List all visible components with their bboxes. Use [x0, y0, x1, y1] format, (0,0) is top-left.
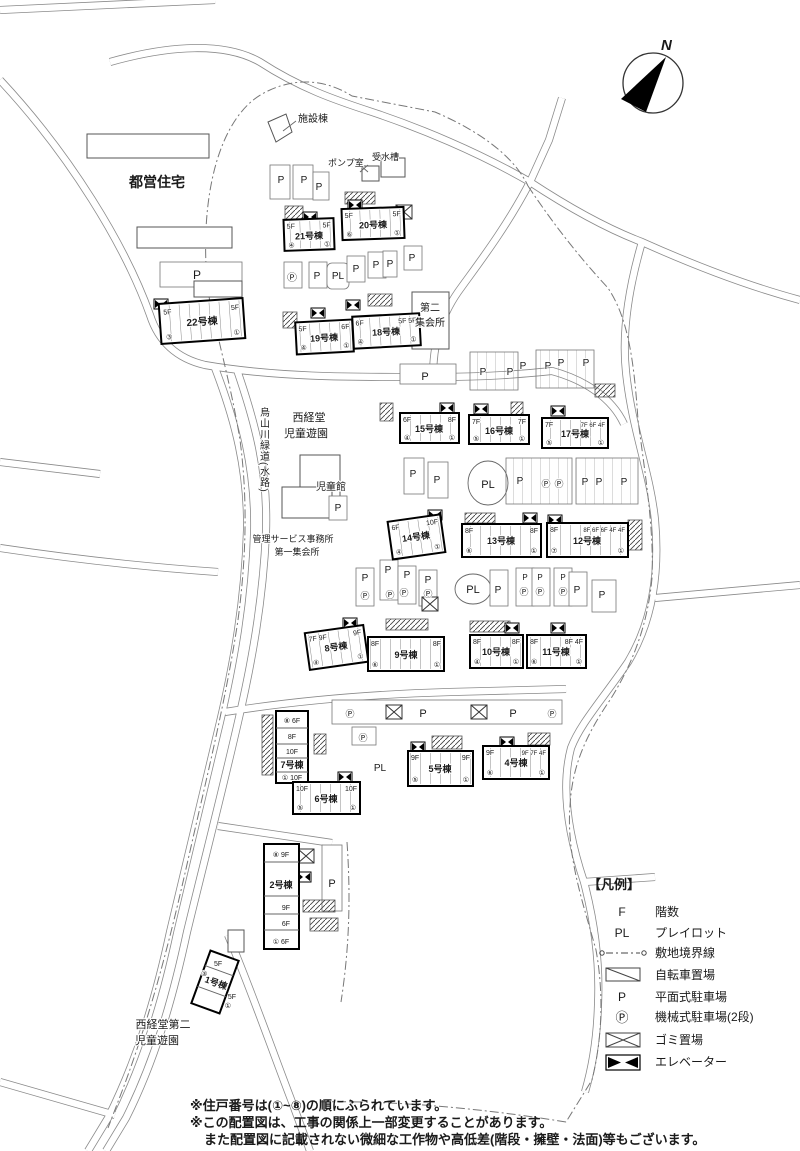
- parking-label: P: [193, 268, 201, 282]
- unit-label: ①: [463, 776, 469, 784]
- machine-parking-label: Ⓟ: [358, 733, 367, 743]
- parking-label: P: [387, 259, 394, 270]
- elevator-icon: [338, 772, 352, 782]
- unit-label: ①: [449, 434, 455, 442]
- elevator-icon: [440, 403, 454, 413]
- floor-label: 8F: [530, 528, 538, 535]
- machine-parking-label: Ⓟ: [423, 589, 432, 599]
- floor-label: 9F: [411, 755, 419, 762]
- building-13: 8F 8F 13号棟 ⑥ ①: [462, 524, 541, 557]
- legend-symbol-pl: PL: [615, 926, 630, 940]
- park1-label-line2: 児童遊園: [284, 426, 328, 440]
- legend-label-floors: 階数: [655, 904, 679, 919]
- parking-label: P: [517, 476, 524, 487]
- building-name: 6号棟: [314, 793, 338, 804]
- playlot-label: PL: [374, 763, 387, 774]
- parking-label: P: [558, 358, 565, 369]
- parking-label: P: [520, 361, 527, 372]
- building-8: 7F 9F 9F 8号棟 ④ ①: [305, 625, 369, 670]
- parking-label: P: [596, 477, 603, 488]
- unit-label: ①: [598, 439, 604, 447]
- floor-label: 8F: [465, 528, 473, 535]
- building-name: 2号棟: [269, 879, 293, 890]
- floor-label: 8F: [512, 639, 520, 646]
- machine-parking-label: Ⓟ: [554, 479, 563, 489]
- unit-label: ④: [357, 338, 364, 346]
- legend-elevator-symbol: [606, 1055, 640, 1070]
- parking-label: P: [537, 573, 542, 582]
- unit-label: ④: [312, 659, 319, 668]
- floor-label: 9F: [462, 755, 470, 762]
- floor-label: 9F 7F 4F: [522, 751, 547, 757]
- floor-label: 5F: [214, 961, 222, 968]
- floor-label: ① 6F: [273, 938, 289, 946]
- legend-boundary-symbol: [600, 951, 646, 955]
- building-4: 9F 9F 7F 4F 4号棟 ⑥ ①: [483, 746, 549, 779]
- bicycle-parking: [380, 403, 393, 421]
- legend-label-garbage: ゴミ置場: [655, 1032, 703, 1047]
- floor-label: 8F: [448, 417, 456, 424]
- parking-label: P: [385, 565, 392, 576]
- greenway-label: 烏山川緑道(水路): [258, 406, 270, 493]
- floor-label: 6F: [391, 524, 400, 532]
- parking-label: P: [419, 708, 426, 720]
- elevator-icon: [523, 513, 537, 523]
- floor-label: 8F 6F 6F 4F 4F: [583, 528, 625, 534]
- playlot-label: PL: [332, 271, 345, 282]
- bicycle-parking: [470, 621, 510, 632]
- unit-label: ④: [474, 658, 480, 666]
- parking-label: P: [373, 260, 380, 271]
- bicycle-parking: [628, 520, 642, 550]
- legend-label-bicycle: 自転車置場: [655, 968, 715, 982]
- legend-bicycle-symbol: [606, 968, 640, 981]
- small-structure: [228, 930, 244, 952]
- legend-garbage-symbol: [606, 1033, 640, 1047]
- facility-label: 施設棟: [298, 112, 328, 125]
- legend-label-elevator: エレベーター: [655, 1055, 727, 1069]
- elevator-icon: [474, 404, 488, 414]
- building-name: 18号棟: [372, 325, 402, 338]
- bicycle-parking: [314, 734, 326, 754]
- legend-symbol-p: P: [618, 990, 626, 1004]
- north-label: N: [661, 37, 673, 54]
- bicycle-parking: [386, 619, 428, 630]
- parking-strip: [332, 700, 562, 724]
- building-name: 16号棟: [485, 425, 514, 436]
- building-9: 8F 8F 9号棟 ⑥ ①: [368, 637, 444, 671]
- unit-label: ①: [576, 658, 582, 666]
- parking-label: P: [545, 361, 552, 372]
- toei-building-2: [137, 227, 232, 248]
- legend-label-playlot: プレイロット: [655, 926, 727, 940]
- floor-label: 5F: [228, 994, 236, 1001]
- building-12: 8F 8F 6F 6F 4F 4F 12号棟 ⑦ ①: [547, 523, 628, 557]
- building-name: 15号棟: [415, 423, 444, 434]
- bicycle-parking: [310, 918, 338, 931]
- building-6: 10F 10F 6号棟 ⑤ ①: [293, 782, 360, 814]
- floor-label: 5F: [287, 223, 295, 230]
- unit-label: ①: [618, 547, 624, 555]
- machine-parking-label: Ⓟ: [345, 709, 354, 719]
- legend: 【凡例】 F 階数 PL プレイロット 敷地境界線 自転車置場 P 平面式駐車場…: [588, 877, 754, 1070]
- small-structure: [194, 281, 242, 297]
- unit-label: ①: [394, 229, 401, 237]
- unit-label: ④: [404, 434, 410, 442]
- building-1: ③ 5F 1号棟 5F ①: [191, 951, 238, 1014]
- parking-label: P: [582, 477, 589, 488]
- floor-label: 6F: [355, 320, 364, 327]
- note-line-3: また配置図に記載されない微細な工作物や高低差(階段・擁壁・法面)等もございます。: [204, 1132, 705, 1147]
- floor-label: 8F: [530, 639, 538, 646]
- bicycle-parking: [432, 736, 462, 749]
- note-line-1: ※住戸番号は(①~⑧)の順にふられています。: [190, 1098, 447, 1113]
- parking-label: P: [335, 503, 342, 514]
- elevator-icon: [551, 406, 565, 416]
- building-name: 19号棟: [310, 331, 340, 344]
- unit-label: ⑤: [297, 804, 303, 812]
- bicycle-parking: [303, 900, 335, 912]
- floor-label: ⑧ 6F: [284, 717, 300, 725]
- unit-label: ⑤: [412, 776, 418, 784]
- bicycle-parking: [465, 513, 495, 523]
- floor-label: 9F: [282, 905, 290, 912]
- machine-parking-label: Ⓟ: [360, 591, 369, 601]
- floor-label: 7F: [545, 422, 553, 429]
- unit-label: ①: [233, 328, 240, 336]
- hall2-label-line2: 集会所: [415, 316, 445, 329]
- building-name: 21号棟: [295, 229, 324, 241]
- building-name: 13号棟: [487, 535, 516, 546]
- building-11: 8F 8F 4F 11号棟 ⑥ ①: [527, 635, 586, 668]
- parking-label: P: [410, 469, 417, 480]
- unit-label: ⑤: [546, 439, 552, 447]
- map-notes: ※住戸番号は(①~⑧)の順にふられています。 ※この配置図は、工事の関係上一部変…: [190, 1098, 705, 1147]
- machine-parking-label: Ⓟ: [535, 587, 544, 597]
- playlot-label: PL: [481, 479, 494, 491]
- floor-label: ⑧ 9F: [273, 851, 289, 859]
- elevator-icon: [551, 623, 565, 633]
- floor-label: 8F: [433, 641, 441, 648]
- pump-room-label: ポンプ室: [328, 157, 364, 168]
- parking-label: P: [599, 590, 606, 601]
- floor-label: 5F: [345, 213, 353, 220]
- legend-symbol-machine-p: Ⓟ: [615, 1010, 628, 1025]
- floor-label: 8F: [288, 734, 296, 741]
- parking-label: P: [421, 371, 428, 383]
- bicycle-parking: [528, 733, 550, 745]
- building-5: 9F 9F 5号棟 ⑤ ①: [408, 751, 473, 786]
- building-name: 5号棟: [428, 763, 452, 774]
- unit-label: ①: [434, 661, 440, 669]
- bicycle-parking: [285, 206, 303, 220]
- parking-label: P: [434, 475, 441, 486]
- unit-label: ①: [539, 769, 545, 777]
- parking-label: P: [328, 878, 335, 890]
- bicycle-parking: [368, 294, 392, 306]
- parking-label: P: [362, 573, 369, 584]
- legend-symbol-f: F: [618, 905, 625, 919]
- unit-label: ⑥: [487, 769, 493, 777]
- parking-label: P: [560, 573, 565, 582]
- legend-label-surface-parking: 平面式駐車場: [655, 989, 727, 1004]
- parking-label: P: [574, 585, 581, 596]
- building-name: 11号棟: [542, 646, 571, 657]
- floor-label: 6F: [341, 324, 350, 331]
- unit-label: ①: [225, 1002, 231, 1010]
- building-2: ⑧ 9F 2号棟 9F 6F ① 6F: [264, 844, 299, 949]
- floor-label: 8F: [550, 527, 558, 534]
- hall2-label-line1: 第二: [420, 301, 440, 314]
- unit-label: ①: [410, 335, 417, 343]
- floor-label: 7F: [518, 419, 526, 426]
- floor-label: 8F 4F: [565, 639, 583, 646]
- office-label-line1: 管理サービス事務所: [252, 533, 333, 544]
- floor-label: 5F 5F: [398, 317, 417, 325]
- machine-parking-label: Ⓟ: [287, 272, 297, 284]
- parking-label: P: [583, 358, 590, 369]
- unit-label: ⑥: [531, 658, 537, 666]
- machine-parking-label: Ⓟ: [385, 590, 394, 600]
- parking-label: P: [409, 253, 416, 264]
- floor-label: 10F: [345, 786, 357, 793]
- unit-label: ③: [166, 333, 173, 341]
- floor-label: 9F: [353, 629, 362, 637]
- floor-label: 5F: [231, 304, 240, 312]
- floor-label: 10F: [286, 749, 298, 756]
- floor-label: 6F: [403, 417, 411, 424]
- park2-label-line2: 児童遊園: [135, 1033, 179, 1047]
- toei-building-1: [87, 134, 209, 158]
- floor-label: 10F: [296, 786, 308, 793]
- machine-parking-label: Ⓟ: [519, 587, 528, 597]
- building-7: ⑧ 6F 8F 10F 7号棟 ① 10F: [276, 711, 308, 783]
- unit-label: ⑥: [372, 661, 378, 669]
- parking-label: P: [404, 570, 411, 581]
- unit-label: ①: [513, 658, 519, 666]
- unit-label: ⑦: [551, 547, 557, 555]
- building-15: 6F 8F 15号棟 ④ ①: [400, 413, 459, 443]
- unit-label: ④: [300, 344, 307, 352]
- unit-label: ①: [519, 435, 525, 443]
- building-name: 10号棟: [482, 646, 511, 657]
- machine-parking-label: Ⓟ: [399, 588, 408, 598]
- building-name: 9号棟: [394, 649, 418, 660]
- park1-label-line1: 西経堂: [293, 411, 326, 424]
- elevator-icon: [311, 308, 325, 318]
- floor-label: 5F: [322, 222, 330, 229]
- garbage-icon: [471, 705, 487, 719]
- unit-label: ①: [343, 342, 350, 350]
- site-plan-page: 5F 5F 22号棟 ③ ① 5F 5F 21号棟 ④ ① 5F 5F 20号棟…: [0, 0, 800, 1151]
- jidokan-label: 児童館: [316, 480, 346, 493]
- site-plan-map: 5F 5F 22号棟 ③ ① 5F 5F 21号棟 ④ ① 5F 5F 20号棟…: [0, 0, 800, 1151]
- building-name: 7号棟: [280, 759, 304, 770]
- note-line-2: ※この配置図は、工事の関係上一部変更することがあります。: [190, 1115, 552, 1130]
- toei-housing-label: 都営住宅: [128, 174, 185, 190]
- parking-label: P: [301, 175, 308, 186]
- compass-needle: [621, 57, 666, 112]
- floor-label: 5F: [392, 211, 400, 218]
- garbage-icon: [386, 705, 402, 719]
- park2-label-line1: 西経堂第二: [136, 1017, 191, 1031]
- unit-label: ④: [395, 548, 402, 557]
- building-name: 4号棟: [504, 757, 528, 768]
- building-16: 7F 7F 16号棟 ⑤ ①: [469, 415, 529, 444]
- garbage-icon: [298, 849, 314, 863]
- north-arrow: N: [621, 37, 683, 113]
- unit-label: ①: [434, 543, 441, 552]
- parking-label: P: [522, 573, 527, 582]
- unit-label: ①: [350, 804, 356, 812]
- parking-label: P: [316, 182, 323, 193]
- building-14: 6F 10F 14号棟 ④ ①: [388, 514, 446, 559]
- floor-label: ① 10F: [282, 774, 302, 782]
- parking-label: P: [621, 477, 628, 488]
- building-name: 12号棟: [573, 535, 602, 546]
- building-18: 6F 5F 5F 18号棟 ④ ①: [352, 313, 421, 348]
- floor-label: 5F: [298, 326, 307, 333]
- elevator-icon: [346, 300, 360, 310]
- facility-building: [268, 114, 292, 142]
- parking-label: P: [509, 708, 516, 720]
- parking-label: P: [495, 585, 502, 596]
- bicycle-parking: [511, 402, 523, 416]
- legend-title: 【凡例】: [588, 877, 640, 892]
- machine-parking-label: Ⓟ: [558, 587, 567, 597]
- elevator-icon: [505, 623, 519, 633]
- unit-label: ⑤: [473, 435, 479, 443]
- building-22: 5F 5F 22号棟 ③ ①: [159, 298, 246, 344]
- machine-parking-label: Ⓟ: [541, 479, 550, 489]
- parking-label: P: [480, 367, 487, 378]
- parking-label: P: [507, 367, 514, 378]
- legend-label-machine-parking: 機械式駐車場(2段): [655, 1009, 754, 1024]
- unit-label: ①: [324, 240, 331, 248]
- unit-label: ⑥: [466, 547, 472, 555]
- bicycle-parking: [595, 384, 615, 397]
- floor-label: 8F: [371, 641, 379, 648]
- building-10: 8F 8F 10号棟 ④ ①: [470, 635, 523, 668]
- building-19: 5F 6F 19号棟 ④ ①: [295, 320, 354, 355]
- water-tank-label: 受水槽: [372, 151, 399, 162]
- building-21: 5F 5F 21号棟 ④ ①: [283, 218, 334, 251]
- floor-label: 9F: [486, 750, 494, 757]
- legend-label-boundary: 敷地境界線: [655, 945, 715, 960]
- building-outline: [264, 844, 299, 949]
- boundary-end-circle: [642, 951, 646, 955]
- building-name: 20号棟: [359, 218, 388, 230]
- parking-label: P: [353, 264, 360, 275]
- unit-label: ①: [357, 652, 364, 661]
- playlot-label: PL: [466, 584, 479, 596]
- building-17: 7F 7F 6F 4F 17号棟 ⑤ ①: [542, 418, 608, 448]
- parking-label: P: [278, 175, 285, 186]
- machine-parking-label: Ⓟ: [547, 709, 556, 719]
- parking-label: P: [425, 575, 432, 586]
- bicycle-parking: [262, 715, 273, 775]
- floor-label: 5F: [163, 309, 172, 317]
- garbage-icon: [422, 597, 438, 611]
- parking-label: P: [314, 271, 321, 282]
- floor-label: 8F: [473, 639, 481, 646]
- unit-label: ④: [288, 242, 295, 250]
- unit-label: ⑥: [346, 231, 353, 239]
- floor-label: 7F: [472, 419, 480, 426]
- floor-label: 6F: [282, 921, 290, 928]
- building-name: 17号棟: [561, 428, 590, 439]
- unit-label: ①: [531, 547, 537, 555]
- building-20: 5F 5F 20号棟 ⑥ ①: [341, 207, 404, 240]
- office-label-line2: 第一集会所: [274, 546, 319, 557]
